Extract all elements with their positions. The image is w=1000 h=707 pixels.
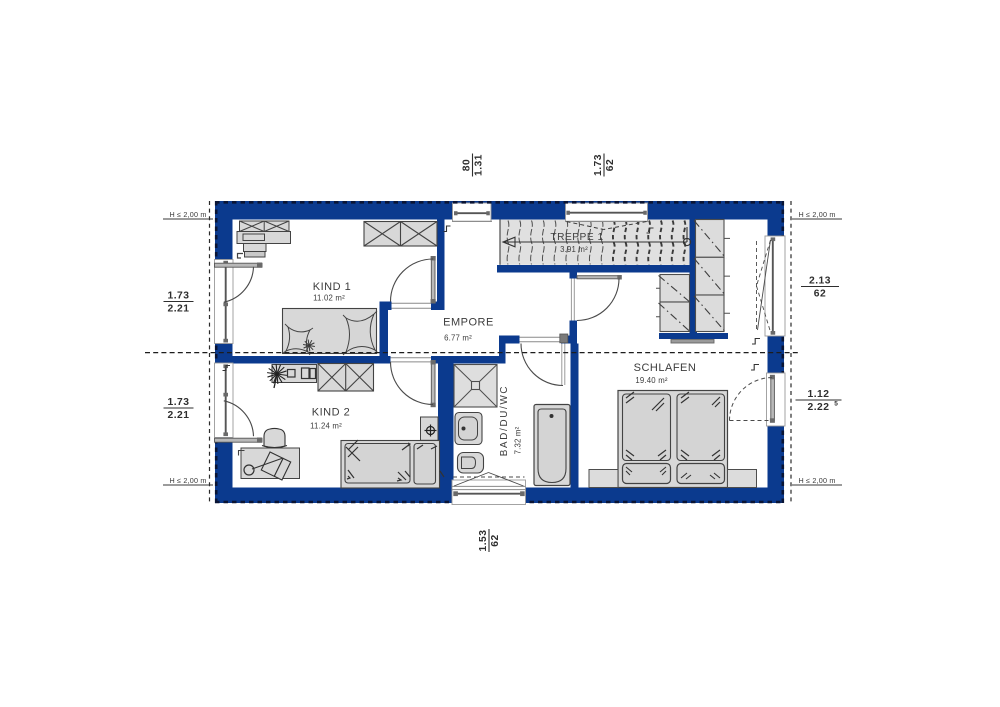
- svg-text:1.12: 1.12: [807, 389, 829, 400]
- svg-text:5: 5: [834, 401, 838, 408]
- svg-text:1.73: 1.73: [593, 154, 604, 176]
- svg-text:H ≤ 2,00 m: H ≤ 2,00 m: [798, 476, 835, 485]
- svg-text:2.13: 2.13: [809, 276, 831, 287]
- svg-text:2.21: 2.21: [167, 410, 189, 421]
- svg-text:3.91 m²: 3.91 m²: [560, 245, 588, 254]
- svg-text:KIND 1: KIND 1: [313, 281, 351, 293]
- svg-text:62: 62: [605, 159, 616, 171]
- svg-text:EMPORE: EMPORE: [443, 317, 494, 329]
- svg-text:1.73: 1.73: [167, 291, 189, 302]
- svg-text:11.24 m²: 11.24 m²: [310, 422, 342, 431]
- svg-text:H ≤ 2,00 m: H ≤ 2,00 m: [798, 210, 835, 219]
- svg-text:BAD/DU/WC: BAD/DU/WC: [499, 385, 510, 456]
- svg-text:H ≤ 2,00 m: H ≤ 2,00 m: [169, 476, 206, 485]
- svg-text:1.73: 1.73: [167, 397, 189, 408]
- svg-text:TREPPE 1: TREPPE 1: [550, 232, 603, 243]
- svg-text:11.02 m²: 11.02 m²: [313, 294, 345, 303]
- svg-text:2.21: 2.21: [167, 304, 189, 315]
- svg-text:2.22: 2.22: [807, 402, 829, 413]
- svg-text:H ≤ 2,00 m: H ≤ 2,00 m: [169, 210, 206, 219]
- svg-text:KIND 2: KIND 2: [312, 407, 350, 419]
- svg-text:19.40 m²: 19.40 m²: [635, 376, 668, 385]
- svg-text:1.31: 1.31: [474, 154, 485, 176]
- svg-text:7.32 m²: 7.32 m²: [514, 426, 523, 454]
- svg-text:1.53: 1.53: [478, 529, 489, 551]
- svg-text:6.77 m²: 6.77 m²: [444, 334, 472, 343]
- svg-text:62: 62: [814, 289, 826, 300]
- svg-text:62: 62: [490, 534, 501, 546]
- svg-text:80: 80: [462, 159, 473, 171]
- svg-text:SCHLAFEN: SCHLAFEN: [634, 362, 697, 374]
